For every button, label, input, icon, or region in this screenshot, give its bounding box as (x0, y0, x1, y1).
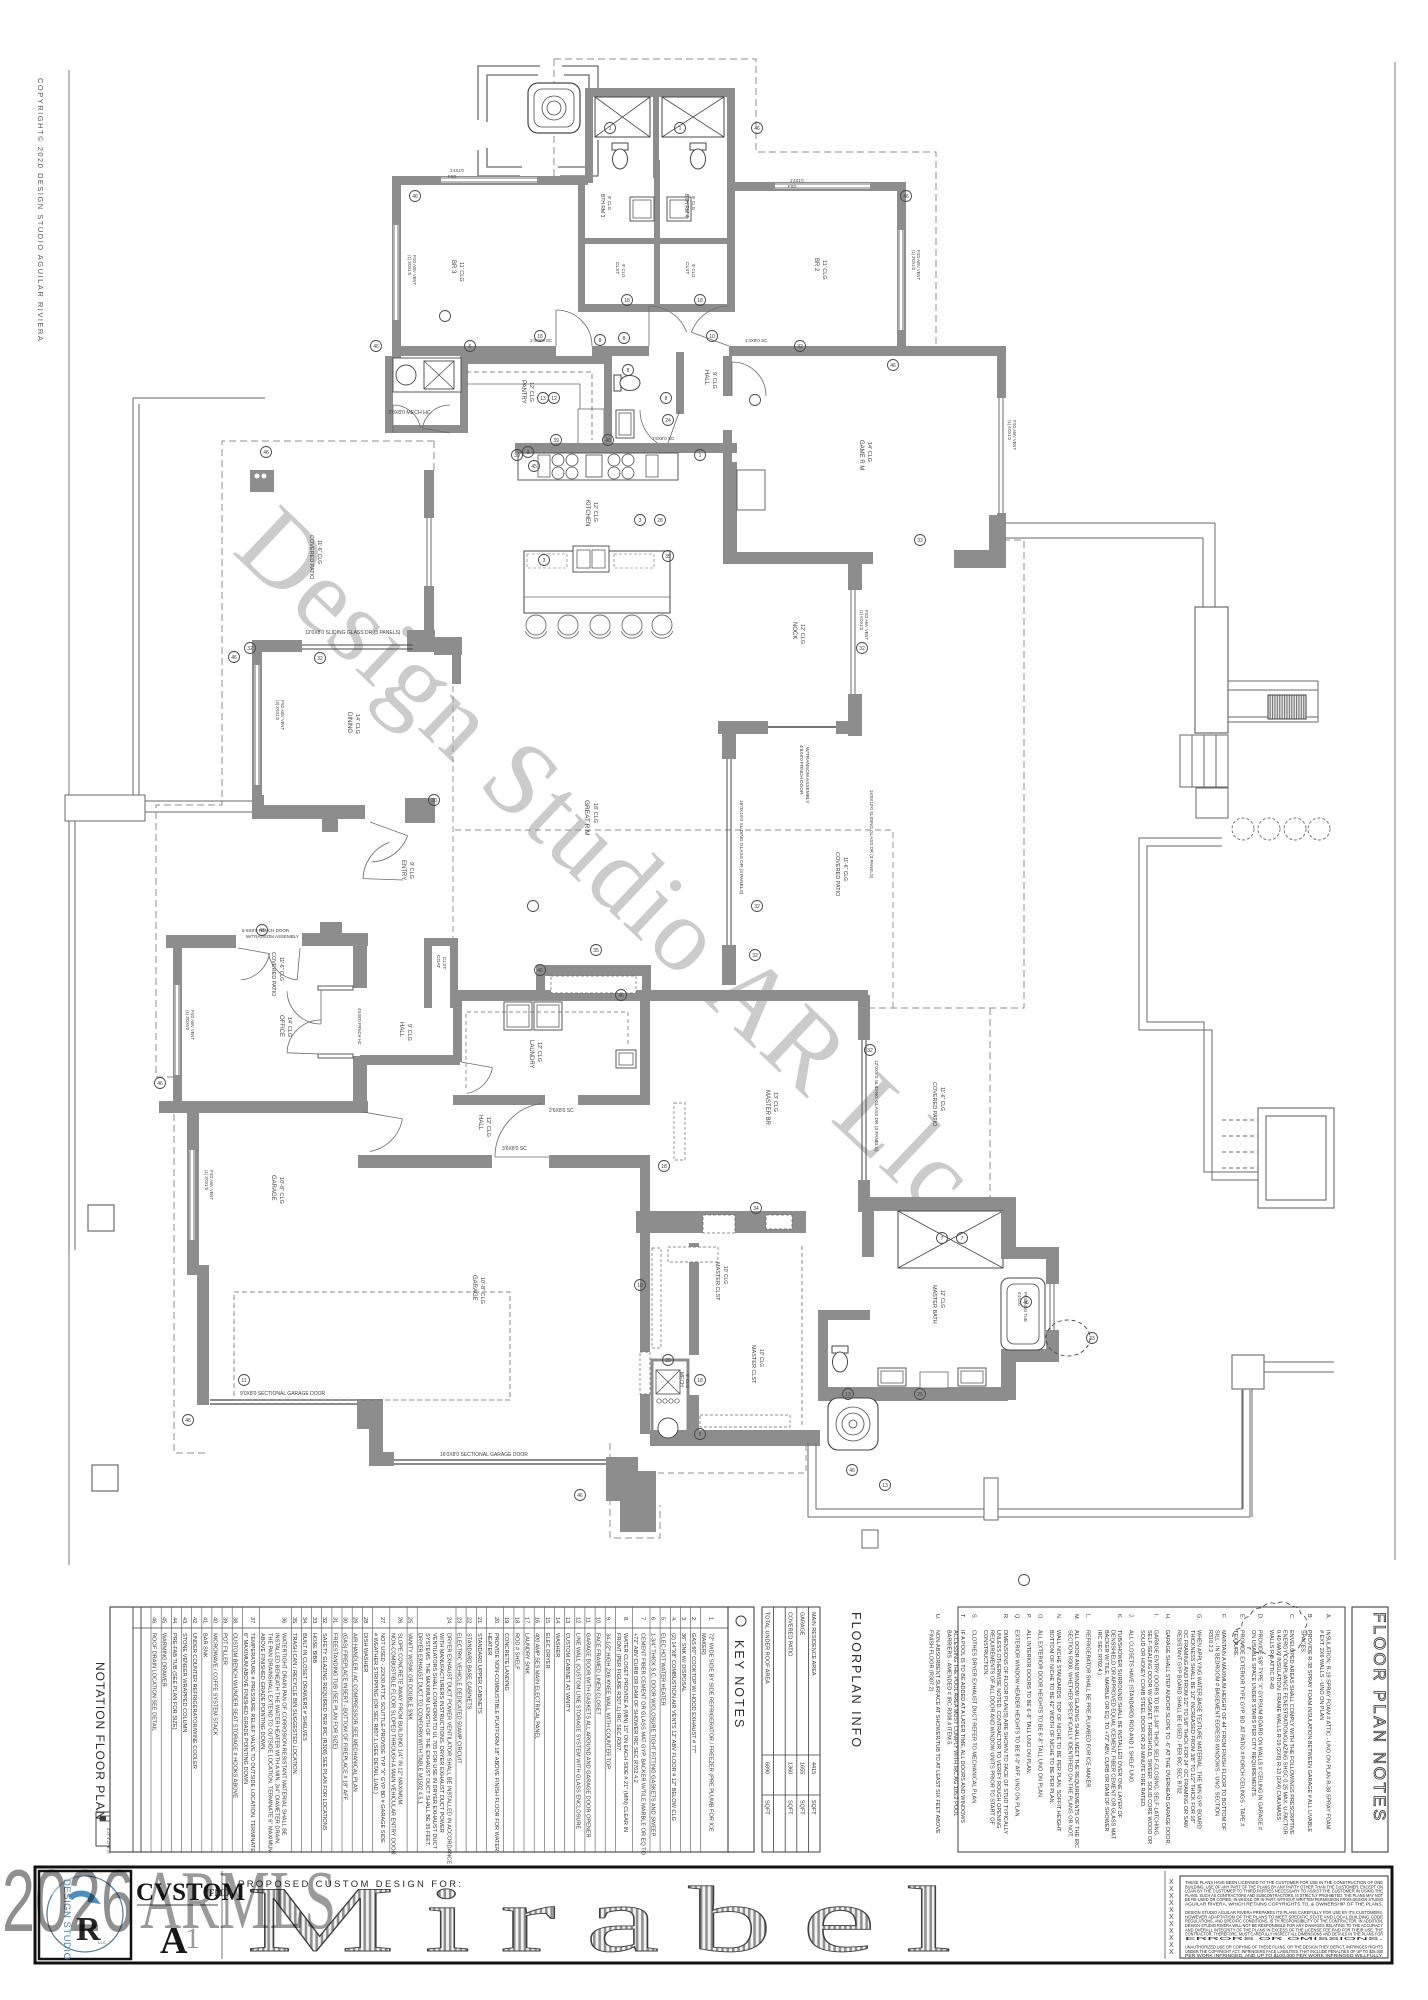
svg-text:43.: 43. (181, 1617, 187, 1625)
svg-text:1'4X1'0: 1'4X1'0 (450, 168, 464, 173)
svg-text:BTH RM 4: BTH RM 4 (683, 194, 689, 218)
svg-text:X: X (1169, 1907, 1174, 1914)
svg-text:30.: 30. (342, 1617, 348, 1625)
svg-text:AGUILAR RIVERA, WHICH RETAINS: AGUILAR RIVERA, WHICH RETAINS COPYRIGHTS… (1185, 1902, 1383, 1907)
svg-text:FXD: FXD (448, 174, 456, 179)
svg-text:S.: S. (970, 1614, 976, 1620)
svg-text:WATER CLOSET PROVIDE A (MIN) 1: WATER CLOSET PROVIDE A (MIN) 15" ON EACH… (622, 1633, 628, 1832)
svg-text:6" MAXIMUM ABOVE FINISHED GRAD: 6" MAXIMUM ABOVE FINISHED GRADE POINTING… (242, 1633, 248, 1784)
svg-text:40.: 40. (211, 1617, 217, 1625)
svg-text:REFRIGERATOR SHALL BE PRE-PLUM: REFRIGERATOR SHALL BE PRE-PLUMBED FOR IC… (1085, 1630, 1091, 1789)
svg-text:VANITY W/SNK OR DOUBLE SNK: VANITY W/SNK OR DOUBLE SNK (407, 1633, 413, 1720)
svg-text:COVERED PATIO: COVERED PATIO (270, 952, 276, 997)
svg-text:CLOTHES DRYER EXHAUST DUCT REF: CLOTHES DRYER EXHAUST DUCT REFER TO MECH… (970, 1630, 976, 1805)
svg-text:G.: G. (1195, 1614, 1201, 1620)
svg-text:BTH RM 3: BTH RM 3 (599, 194, 605, 218)
svg-text:FXD ABV VENT: FXD ABV VENT (190, 1010, 195, 1040)
svg-text:UNDER COUNTER REFRIGERATOR/WIN: UNDER COUNTER REFRIGERATOR/WINE COOLER (191, 1633, 197, 1769)
svg-text:18: 18 (697, 1378, 703, 1384)
svg-text:2'6X8'0 SC: 2'6X8'0 SC (549, 1108, 574, 1114)
svg-text:CUSTOM BENCH W/UNDER SEAT STOR: CUSTOM BENCH W/UNDER SEAT STORAGE # HOOK… (232, 1633, 238, 1798)
svg-text:35: 35 (593, 948, 599, 954)
svg-text:WARMING DRAWER: WARMING DRAWER (161, 1633, 167, 1687)
svg-text:8: 8 (599, 338, 602, 344)
svg-text:8: 8 (623, 336, 626, 342)
svg-text:MECH: MECH (678, 1372, 684, 1387)
svg-text:1: 1 (679, 126, 682, 132)
svg-text:Mirabel: Mirabel (246, 1868, 981, 1972)
svg-text:44.: 44. (171, 1617, 177, 1625)
svg-text:ROD # SHELF: ROD # SHELF (513, 1633, 519, 1670)
svg-text:COAT: COAT (435, 955, 441, 968)
svg-text:IRC SEC R702.4.): IRC SEC R702.4.) (1096, 1630, 1102, 1675)
svg-text:46: 46 (618, 993, 624, 999)
svg-text:9' CLG: 9' CLG (685, 1374, 690, 1389)
svg-text:PROVIDE 5/8" TYPE 'X' GYPSUM B: PROVIDE 5/8" TYPE 'X' GYPSUM BOARD ON WA… (1257, 1630, 1263, 1831)
svg-text:FXD ABV VENT: FXD ABV VENT (864, 610, 869, 640)
svg-text:2: 2 (527, 450, 530, 456)
svg-text:ALL DOOR AND WINDOW GLAZING SH: ALL DOOR AND WINDOW GLAZING SHALL MEET T… (1073, 1630, 1079, 1848)
svg-text:NON-ABSORBENT SURFACE AT SHOWE: NON-ABSORBENT SURFACE AT SHOWER/TUB TO A… (934, 1630, 940, 1834)
svg-text:18: 18 (661, 1164, 667, 1170)
svg-text:28.: 28. (362, 1617, 368, 1625)
svg-text:2026: 2026 (2, 1851, 134, 1950)
svg-text:4.: 4. (670, 1617, 676, 1622)
svg-text:10'-8" CLG: 10'-8" CLG (278, 1177, 284, 1204)
svg-text:26.: 26. (396, 1617, 402, 1625)
svg-text:GREAT R M: GREAT R M (583, 800, 590, 836)
svg-text:11.: 11. (584, 1617, 590, 1625)
svg-text:46: 46 (849, 1468, 855, 1474)
svg-text:BAR SNK: BAR SNK (201, 1633, 207, 1658)
svg-text:GAS 60" COOKTOP W/ HOOD EXHAUS: GAS 60" COOKTOP W/ HOOD EXHAUST # 77" (690, 1633, 696, 1753)
svg-text:(1) 6'0X1'0: (1) 6'0X1'0 (859, 610, 864, 631)
svg-text:46: 46 (537, 968, 543, 974)
svg-text:10' CLG: 10' CLG (722, 1266, 728, 1284)
svg-text:3.: 3. (680, 1617, 686, 1622)
svg-text:SLOPE CONCRETE AWAY FROM BUILD: SLOPE CONCRETE AWAY FROM BUILDING 1/4" I… (396, 1633, 402, 1806)
svg-text:46: 46 (157, 1081, 163, 1087)
svg-text:VENTILATORS SHALL CONFORM TO U: VENTILATORS SHALL CONFORM TO UL 705 FOR … (431, 1633, 437, 1850)
svg-text:(1) 6'0X1'0: (1) 6'0X1'0 (1007, 420, 1012, 441)
svg-text:W/TRANSOM ASSEMBLY: W/TRANSOM ASSEMBLY (246, 934, 299, 939)
svg-text:46: 46 (577, 1493, 583, 1499)
svg-text:36.: 36. (281, 1617, 287, 1625)
svg-text:32: 32 (867, 1048, 873, 1054)
svg-text:ALL INTERIOR DOORS TO BE 6'-8": ALL INTERIOR DOORS TO BE 6'-8" TALL UNO … (1025, 1630, 1031, 1775)
svg-text:1'4X1'0: 1'4X1'0 (790, 178, 804, 183)
svg-text:MASTER BATH: MASTER BATH (931, 1285, 937, 1324)
svg-text:18' CLG: 18' CLG (592, 803, 598, 823)
svg-text:ON USABLE SPACE UNDER STAIRS P: ON USABLE SPACE UNDER STAIRS PER CITY RE… (1250, 1630, 1256, 1798)
svg-text:46: 46 (412, 194, 418, 200)
svg-text:CUSTOM CABINET AT VANITY: CUSTOM CABINET AT VANITY (564, 1633, 570, 1712)
svg-text:B.: B. (1306, 1614, 1312, 1620)
svg-text:BUILT IN CLOSET DRAWERS # SHEL: BUILT IN CLOSET DRAWERS # SHELVES (301, 1633, 307, 1741)
svg-text:13' CLG: 13' CLG (772, 1092, 778, 1112)
svg-text:12'0X8'0 SLIDING GLASS DR (3 P: 12'0X8'0 SLIDING GLASS DR (3 PANELS) (873, 1060, 879, 1152)
svg-text:14' CLG: 14' CLG (354, 714, 360, 734)
svg-text:3: 3 (543, 558, 546, 564)
svg-text:COVERED PATIO: COVERED PATIO (931, 1082, 937, 1127)
svg-text:BACKER W/ TILE, MARBLE OR EQ.: BACKER W/ TILE, MARBLE OR EQ. TO +72" AB… (1103, 1630, 1109, 1832)
svg-text:T.: T. (959, 1614, 965, 1619)
svg-text:42.: 42. (191, 1617, 197, 1625)
svg-text:X: X (1169, 1914, 1174, 1921)
svg-text:14' CLG: 14' CLG (286, 1017, 292, 1037)
svg-text:27.: 27. (379, 1617, 385, 1625)
svg-text:PER WORK INFRINGED, AND UP TO: PER WORK INFRINGED, AND UP TO $100,000 P… (1185, 1953, 1383, 1958)
svg-text:PROVIDE R-38 SPRAY FOAM INSULA: PROVIDE R-38 SPRAY FOAM INSULATION BETWE… (1306, 1630, 1312, 1832)
svg-text:X: X (1169, 1928, 1174, 1935)
svg-text:AIR HANDLER / AC COMPRESSOR SE: AIR HANDLER / AC COMPRESSOR SEE MECHANIC… (352, 1633, 358, 1792)
svg-text:HALL: HALL (477, 1115, 483, 1131)
svg-text:ARMLS: ARMLS (140, 1854, 336, 1947)
svg-text:16.: 16. (534, 1617, 540, 1625)
svg-text:EXTERIOR WINDOW HEADER HEIGHTS: EXTERIOR WINDOW HEADER HEIGHTS TO BE 8'-… (1013, 1630, 1019, 1818)
svg-text:TUB/SHOWER SURROUND SHALL BE I: TUB/SHOWER SURROUND SHALL BE INSTALLED O… (1116, 1630, 1122, 1819)
svg-text:C.: C. (1288, 1614, 1294, 1620)
svg-text:11: 11 (241, 1378, 246, 1384)
svg-text:DIMENSIONS OF FLOOR PLAN(S) AR: DIMENSIONS OF FLOOR PLAN(S) ARE SHOWN TO… (1002, 1630, 1008, 1834)
svg-text:46: 46 (231, 655, 237, 661)
svg-text:CONCRETE LANDING: CONCRETE LANDING (503, 1633, 509, 1691)
svg-text:33: 33 (1089, 1336, 1095, 1342)
svg-text:1'4X8'0 SC: 1'4X8'0 SC (745, 338, 768, 343)
svg-text:15.: 15. (544, 1617, 550, 1625)
svg-text:(2) 14"X8" COMBUSTION AIR VENT: (2) 14"X8" COMBUSTION AIR VENTS 12" ABV … (670, 1633, 676, 1821)
svg-text:6.: 6. (650, 1617, 656, 1622)
svg-text:(1) 3'0X1'0: (1) 3'0X1'0 (911, 250, 916, 271)
svg-text:32: 32 (317, 656, 323, 662)
svg-text:1'6X8'0 SC: 1'6X8'0 SC (652, 436, 675, 441)
svg-text:SQFT: SQFT (787, 1800, 793, 1815)
svg-text:25.: 25. (407, 1617, 413, 1625)
svg-text:18: 18 (624, 298, 630, 304)
svg-text:16'0X10'0 SLIDING GLASS DR (3: 16'0X10'0 SLIDING GLASS DR (3 PANELS) (738, 800, 744, 895)
svg-text:36" SNK W/ DISPOSAL: 36" SNK W/ DISPOSAL (680, 1633, 686, 1692)
svg-text:WHEN APPLYING WATER-BASE TEXTU: WHEN APPLYING WATER-BASE TEXTURE MATERIA… (1195, 1630, 1201, 1829)
svg-text:+72" ABV CURB OR DAM OF SHOWER: +72" ABV CURB OR DAM OF SHOWER IRC SEC R… (632, 1633, 638, 1783)
svg-text:39.: 39. (222, 1617, 228, 1625)
svg-text:11'-6" CLG: 11'-6" CLG (842, 857, 848, 881)
svg-text:GARAGE: GARAGE (798, 1612, 804, 1636)
svg-text:NOTATION FLOOR PLAN: NOTATION FLOOR PLAN (93, 1662, 107, 1821)
svg-text:35: 35 (665, 554, 671, 560)
svg-text:10: 10 (709, 334, 715, 340)
svg-text:12' CLG: 12' CLG (799, 624, 805, 644)
svg-text:16'0X10'0 SLIDING GLASS DR (3: 16'0X10'0 SLIDING GLASS DR (3 PANELS) (869, 790, 874, 879)
svg-text:6: 6 (469, 344, 472, 350)
svg-text:4415: 4415 (810, 1762, 816, 1774)
svg-text:32: 32 (247, 646, 253, 652)
svg-text:12' CLG: 12' CLG (939, 1290, 945, 1308)
svg-text:OC FRAMING AND FROM 1/2" TO 5/: OC FRAMING AND FROM 1/2" TO 5/8" THICK F… (1182, 1630, 1188, 1829)
svg-text:DINING: DINING (346, 712, 352, 733)
svg-text:P.: P. (1025, 1614, 1031, 1619)
svg-text:MICROWAVE / COFFE SYSTEM STACK: MICROWAVE / COFFE SYSTEM STACK (211, 1633, 217, 1736)
svg-text:46: 46 (903, 194, 909, 200)
svg-text:13: 13 (845, 1392, 851, 1398)
svg-text:COVERED PATIO: COVERED PATIO (787, 1612, 793, 1657)
svg-text:R310.2.2: R310.2.2 (1207, 1630, 1213, 1652)
svg-text:STANDARD BASE CABINETS: STANDARD BASE CABINETS (466, 1633, 472, 1710)
svg-text:PRE-FAB TUB (SEE PLAN FOR SIZE: PRE-FAB TUB (SEE PLAN FOR SIZE) (171, 1633, 177, 1730)
svg-text:19.: 19. (503, 1617, 509, 1625)
svg-text:ELEC HOT WATER HEATER: ELEC HOT WATER HEATER (660, 1633, 666, 1706)
svg-text:30: 30 (431, 798, 437, 804)
svg-text:11'-6" CLG: 11'-6" CLG (316, 540, 322, 564)
svg-text:PROVIDE NON-COMBUSTIBLE PLATFO: PROVIDE NON-COMBUSTIBLE PLATFORM 18" ABO… (493, 1633, 499, 1851)
svg-text:3: 3 (639, 518, 642, 524)
svg-text:39: 39 (514, 453, 520, 459)
svg-text:INSTALLED BENEATH THE WATER HE: INSTALLED BENEATH THE WATER HEATER WITH … (274, 1633, 280, 1845)
svg-text:4'6X8'0 FRNCH HC: 4'6X8'0 FRNCH HC (357, 1008, 362, 1045)
svg-text:3'0X8'0 MECH HC: 3'0X8'0 MECH HC (388, 410, 431, 416)
svg-text:11'-6" CLG: 11'-6" CLG (939, 1087, 945, 1111)
svg-text:46.: 46. (151, 1617, 157, 1625)
svg-text:46: 46 (373, 344, 379, 350)
svg-text:ENTRY: ENTRY (400, 860, 406, 880)
svg-text:CLST: CLST (684, 262, 690, 274)
svg-text:I.: I. (1152, 1614, 1158, 1618)
svg-text:ENERGY COMPLIANCE FENESTRATION: ENERGY COMPLIANCE FENESTRATION/GLAZING S… (1281, 1630, 1287, 1834)
svg-text:LINE WALL (CUSTOM LINE STORAGE: LINE WALL (CUSTOM LINE STORAGE SYSTEM WI… (574, 1633, 580, 1829)
svg-text:9' CLG: 9' CLG (691, 196, 696, 211)
svg-text:(GAS) FIREPLACE INSERT - BOTTO: (GAS) FIREPLACE INSERT - BOTTOM OF FIREP… (342, 1633, 348, 1801)
svg-text:9.: 9. (605, 1617, 611, 1622)
svg-text:SQFT: SQFT (798, 1800, 804, 1815)
svg-text:12' CLG: 12' CLG (536, 1042, 542, 1062)
svg-text:13.: 13. (564, 1617, 570, 1625)
svg-text:X: X (1169, 1935, 1174, 1942)
svg-text:GARAGE SHALL STEP AND/OR SLOPE: GARAGE SHALL STEP AND/OR SLOPE TO -6" AT… (1164, 1630, 1170, 1846)
svg-text:ERRORS OR OMISSIONS.: ERRORS OR OMISSIONS. (1185, 1936, 1383, 1941)
svg-text:TOTAL UNDER ROOF AREA: TOTAL UNDER ROOF AREA (764, 1612, 770, 1684)
svg-text:CLST: CLST (441, 957, 447, 969)
svg-text:7: 7 (941, 1236, 944, 1242)
svg-text:HALL: HALL (398, 1022, 404, 1038)
svg-text:INSULATION: R-19 SPRAY FOAM #: INSULATION: R-19 SPRAY FOAM # ATTIC - UN… (1324, 1630, 1330, 1830)
svg-text:GAME R M: GAME R M (858, 440, 864, 470)
svg-text:# WEATHER STRIPPING (OR SEC R8: # WEATHER STRIPPING (OR SEC R807.1 (SEE … (372, 1633, 378, 1794)
svg-text:DRYER EXHAUST DUCT TO CONFORM: DRYER EXHAUST DUCT TO CONFORM WITH TABLE… (417, 1633, 423, 1804)
svg-text:12'0X8'0 SLIDING GLASS DR (3 P: 12'0X8'0 SLIDING GLASS DR (3 PANELS) (305, 630, 401, 636)
svg-text:K.: K. (1116, 1614, 1122, 1620)
svg-text:HEATER: HEATER (486, 1633, 492, 1655)
svg-text:1360: 1360 (787, 1762, 793, 1774)
svg-text:ABOVE FINISHED GRADE POINTING: ABOVE FINISHED GRADE POINTING DOWN. (259, 1633, 265, 1751)
svg-text:11'-6" CLG: 11'-6" CLG (278, 957, 284, 981)
svg-text:FINISH FLOOR (R307.2): FINISH FLOOR (R307.2) (927, 1630, 933, 1692)
svg-text:THE PAN DRAINSHALL EXTEND TO O: THE PAN DRAINSHALL EXTEND TO OUTSIDE LOC… (266, 1633, 272, 1853)
svg-text:SQFT: SQFT (810, 1800, 816, 1815)
svg-text:32: 32 (797, 344, 803, 350)
svg-text:MAIN RESIDENCE AREA: MAIN RESIDENCE AREA (810, 1612, 816, 1676)
svg-text:M.: M. (1073, 1614, 1079, 1621)
svg-text:COVERED PATIO: COVERED PATIO (308, 535, 314, 580)
svg-text:34: 34 (753, 1206, 759, 1212)
svg-text:(1) 3'0X1'0: (1) 3'0X1'0 (204, 1170, 209, 1191)
svg-text:FXD ABV VENT: FXD ABV VENT (280, 700, 285, 730)
svg-text:28: 28 (657, 518, 663, 524)
svg-text:COVERED PATIO: COVERED PATIO (834, 852, 840, 897)
svg-text:GARAGE ENTRY DOORS TO BE 1-3/4: GARAGE ENTRY DOORS TO BE 1-3/4" THICK SE… (1152, 1630, 1158, 1837)
svg-text:13: 13 (540, 396, 546, 402)
svg-text:X: X (1169, 1879, 1174, 1886)
svg-text:25: 25 (917, 1392, 923, 1398)
svg-text:17.: 17. (524, 1617, 530, 1625)
svg-text:STONE VENEER WRAPPED COLUMN: STONE VENEER WRAPPED COLUMN (181, 1633, 187, 1732)
svg-text:2.: 2. (690, 1617, 696, 1622)
svg-text:1655: 1655 (798, 1762, 804, 1774)
svg-text:9'0X8'0 SECTIONAL GARAGE DOOR: 9'0X8'0 SECTIONAL GARAGE DOOR (240, 1391, 325, 1397)
svg-text:MASTER CLST: MASTER CLST (750, 1345, 756, 1384)
svg-text:SPACES.: SPACES. (1300, 1630, 1306, 1654)
svg-text:X: X (1169, 1900, 1174, 1907)
svg-text:41.: 41. (201, 1617, 207, 1625)
svg-text:ELEC DRYER: ELEC DRYER (544, 1633, 550, 1669)
svg-text:1: 1 (609, 126, 612, 132)
svg-text:SELF-SEALING DOOR W/ GASKET. T: SELF-SEALING DOOR W/ GASKET. THRESHOLD, … (1146, 1630, 1152, 1844)
svg-text:12' CLG: 12' CLG (485, 1117, 491, 1137)
svg-text:7: 7 (961, 1236, 964, 1242)
svg-text:REQUIREMENTS OF ALL DOOR AND W: REQUIREMENTS OF ALL DOOR AND WINDOW UNIT… (989, 1630, 995, 1826)
svg-text:9' CLG: 9' CLG (406, 1024, 412, 1041)
svg-text:0.40 MAX. INSULATION: FRAME WA: 0.40 MAX. INSULATION: FRAME WALLS R-19 (… (1275, 1630, 1281, 1820)
svg-text:5: 5 (699, 1432, 702, 1438)
svg-text:CLST: CLST (614, 262, 620, 274)
svg-text:32.: 32. (321, 1617, 327, 1625)
svg-text:12' CLG: 12' CLG (592, 502, 598, 522)
svg-text:5.: 5. (660, 1617, 666, 1622)
svg-text:X: X (1169, 1886, 1174, 1893)
svg-text:SECTION R308, WHETHER SPECIFIC: SECTION R308, WHETHER SPECIFICALLY IDENT… (1066, 1630, 1072, 1838)
svg-text:LAUNDRY SINK: LAUNDRY SINK (524, 1633, 530, 1674)
svg-text:X: X (1169, 1893, 1174, 1900)
svg-text:18: 18 (697, 298, 703, 304)
svg-text:22.: 22. (466, 1617, 472, 1625)
svg-text:BR 2: BR 2 (813, 258, 819, 272)
svg-text:37.: 37. (249, 1617, 255, 1625)
svg-text:PROVIDE EXTERIOR TYPE GYP. BD.: PROVIDE EXTERIOR TYPE GYP. BD. AT PATIO … (1238, 1630, 1244, 1827)
svg-text:400 AMP SES MAIN ELECTRICAL PA: 400 AMP SES MAIN ELECTRICAL PANEL (534, 1633, 540, 1739)
svg-text:32: 32 (859, 646, 865, 652)
svg-text:F.: F. (1220, 1614, 1226, 1619)
svg-text:9' CLG: 9' CLG (691, 264, 696, 278)
svg-text:35.: 35. (291, 1617, 297, 1625)
svg-text:W/TRANSOM ASSEMBLY: W/TRANSOM ASSEMBLY (804, 747, 810, 804)
svg-text:KITCHEN: KITCHEN (584, 500, 590, 526)
svg-text:CONSTRUCTION.: CONSTRUCTION. (982, 1630, 988, 1676)
svg-text:9' CLG: 9' CLG (408, 862, 414, 879)
svg-text:GARAGE: GARAGE (471, 1275, 477, 1301)
svg-text:IF A POOL IS TO BE ADDED AT A: IF A POOL IS TO BE ADDED AT A LATER TIME… (959, 1630, 965, 1823)
svg-text:FXD ABV VENT: FXD ABV VENT (412, 255, 417, 285)
svg-text:ACCESSING THE POOL AREA MUST C: ACCESSING THE POOL AREA MUST COMPLY WITH… (952, 1630, 958, 1816)
svg-text:MASTER BR: MASTER BR (764, 1090, 770, 1126)
svg-text:43: 43 (259, 928, 265, 934)
svg-text:ENVELOPED AREAS SHALL COMPLY W: ENVELOPED AREAS SHALL COMPLY WITH THE FO… (1288, 1630, 1294, 1835)
svg-text:16'0X8'0 SECTIONAL GARAGE DOOR: 16'0X8'0 SECTIONAL GARAGE DOOR (440, 1452, 528, 1458)
svg-text:KEY NOTES: KEY NOTES (732, 1640, 746, 1729)
svg-text:FXD: FXD (788, 184, 796, 189)
svg-text:8: 8 (665, 396, 668, 402)
svg-text:20: 20 (665, 1358, 671, 1364)
svg-text:BARRIERS - AMENDED # IRC R308.: BARRIERS - AMENDED # IRC R308.4 ITEM 5. (946, 1630, 952, 1746)
svg-text:6-8X8'0 FRNCH DOOR: 6-8X8'0 FRNCH DOOR (242, 928, 290, 933)
svg-text:WALLS R-8 ATTIC R-49: WALLS R-8 ATTIC R-49 (1268, 1630, 1274, 1689)
svg-text:X: X (1169, 1921, 1174, 1928)
svg-text:NOCK: NOCK (791, 622, 797, 639)
svg-text:29.: 29. (352, 1617, 358, 1625)
svg-text:18.: 18. (513, 1617, 519, 1625)
svg-text:34-1/2" HIGH 2X6 KNEE WALL WIT: 34-1/2" HIGH 2X6 KNEE WALL WITH COUNTER … (605, 1633, 611, 1770)
svg-text:WALL NICHE STANDARDS: TOP OF N: WALL NICHE STANDARDS: TOP OF NICHE TO BE… (1055, 1630, 1061, 1832)
svg-text:46: 46 (263, 450, 269, 456)
svg-text:NON-COMBUSTIBLE FLOOR SLOPED T: NON-COMBUSTIBLE FLOOR SLOPED THROUGH A M… (389, 1633, 395, 1855)
svg-text:FLOOR PLAN NOTES: FLOOR PLAN NOTES (1370, 1612, 1389, 1823)
svg-text:MASTER CLST: MASTER CLST (714, 1262, 720, 1301)
svg-text:(1) 3'0X5'0: (1) 3'0X5'0 (185, 1010, 190, 1031)
svg-text:MAINTAIN A MAXIMUM HEIGHT OF 4: MAINTAIN A MAXIMUM HEIGHT OF 44" FROM FI… (1220, 1630, 1226, 1831)
svg-text:9' CLG: 9' CLG (621, 264, 626, 278)
svg-text:21.: 21. (476, 1617, 482, 1625)
svg-text:6890: 6890 (764, 1762, 770, 1774)
svg-text:10.: 10. (595, 1617, 601, 1625)
svg-text:COPYRIGHT© 2020 DESIGN STUD: COPYRIGHT© 2020 DESIGN STUDIO AGUILAR RI… (36, 78, 45, 342)
svg-text:WITH MANUFACTURERS INSTRUCTION: WITH MANUFACTURERS INSTRUCTIONS. DRYER E… (438, 1633, 444, 1833)
svg-text:OFFICE: OFFICE (278, 1015, 284, 1037)
svg-text:1-3/4" THICK S.C. DOOR W/CLOSU: 1-3/4" THICK S.C. DOOR W/CLOSURE TIGHT F… (650, 1633, 656, 1837)
svg-text:ALL EXTERIOR DOOR HEIGHTS TO B: ALL EXTERIOR DOOR HEIGHTS TO BE 6'-8" TA… (1037, 1630, 1043, 1799)
svg-text:NOT USED - 22X30 ATTIC SCUTTLE: NOT USED - 22X30 ATTIC SCUTTLE-PROVIDE T… (379, 1633, 385, 1843)
svg-text:13: 13 (882, 1483, 888, 1489)
svg-text:O.: O. (1037, 1614, 1043, 1620)
svg-text:33: 33 (917, 538, 923, 544)
svg-text:HOSE BIBB: HOSE BIBB (311, 1633, 317, 1663)
svg-text:32: 32 (754, 904, 760, 910)
svg-text:POT FILLER: POT FILLER (222, 1633, 228, 1665)
svg-text:40: 40 (605, 438, 611, 444)
svg-text:46: 46 (185, 1418, 191, 1424)
svg-text:9' CLG: 9' CLG (711, 372, 717, 389)
svg-text:45: 45 (531, 464, 537, 470)
svg-text:18: 18 (637, 1283, 643, 1289)
svg-text:L.: L. (1085, 1614, 1091, 1619)
svg-text:U.: U. (934, 1614, 940, 1620)
svg-text:24.: 24. (445, 1617, 451, 1625)
svg-text:SQFT: SQFT (764, 1800, 770, 1815)
svg-text:R.: R. (1002, 1614, 1008, 1620)
svg-text:FREESTANDING TUB (SEE PLAN FOR: FREESTANDING TUB (SEE PLAN FOR SIZE) (331, 1633, 337, 1749)
svg-text:A.: A. (1324, 1614, 1330, 1620)
svg-text:FRONT (PER FIGURE R307.1) IRC: FRONT (PER FIGURE R307.1) IRC SEC R307. (615, 1633, 621, 1752)
svg-text:J.: J. (1128, 1614, 1134, 1619)
svg-text:(3) 3'0X1'0: (3) 3'0X1'0 (275, 700, 280, 721)
svg-text:46: 46 (754, 126, 760, 132)
svg-text:UNLESS OTHERWISE NOTED. CONTRA: UNLESS OTHERWISE NOTED. CONTRACTOR TO VE… (995, 1630, 1001, 1828)
svg-text:3'6X8'0 SC: 3'6X8'0 SC (502, 1146, 527, 1152)
svg-text:18: 18 (537, 334, 543, 340)
svg-text:1.: 1. (707, 1617, 713, 1622)
svg-text:(1) 3'0X1'0: (1) 3'0X1'0 (407, 255, 412, 276)
svg-text:ALL CLOSETS HAVE (STANDARD) RO: ALL CLOSETS HAVE (STANDARD) ROD AND 1 SH… (1128, 1630, 1134, 1784)
svg-text:MAKER): MAKER) (700, 1633, 706, 1655)
svg-text:10'-8" CLG: 10'-8" CLG (479, 1277, 485, 1304)
svg-text:4'6X8'0 FRNCH DOOR: 4'6X8'0 FRNCH DOOR (798, 745, 804, 795)
svg-text:X: X (1169, 1942, 1174, 1949)
